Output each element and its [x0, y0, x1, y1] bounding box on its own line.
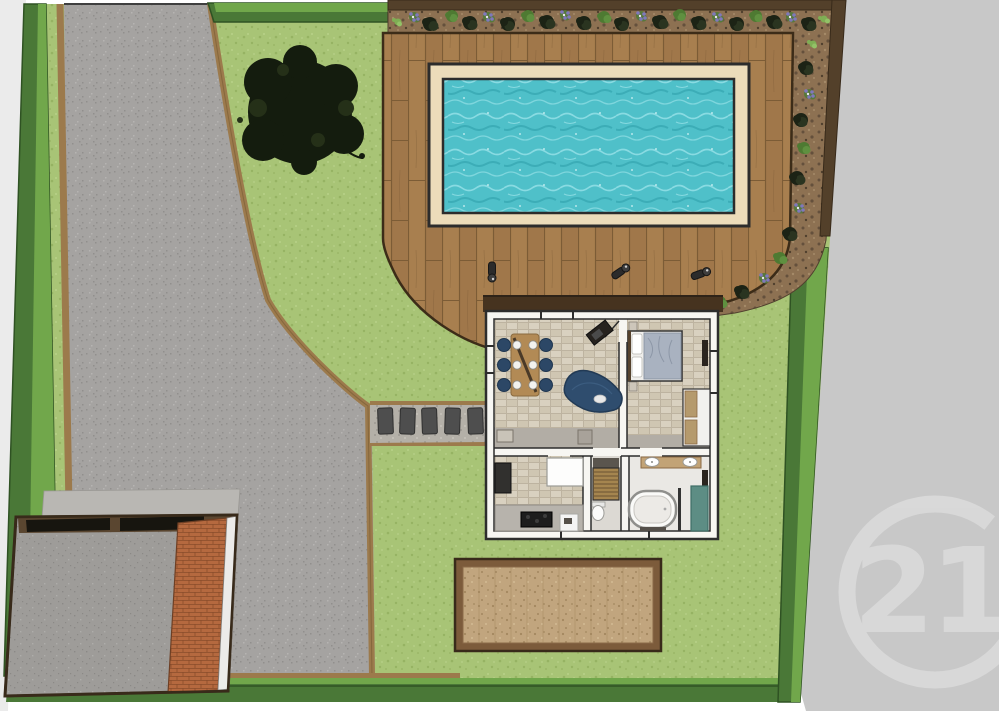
shower-partition [678, 488, 681, 531]
garage-skylight [26, 518, 110, 532]
stair-landing [593, 458, 619, 468]
bath-wall-panel [702, 470, 708, 486]
faucet [689, 461, 691, 463]
swimming-pool [429, 64, 749, 226]
stepping-stone [468, 408, 484, 435]
site-plan: 21 [0, 0, 999, 711]
stepping-stone [422, 408, 438, 435]
burner [535, 519, 539, 523]
bath-mat [640, 527, 666, 531]
deck-light [488, 262, 496, 282]
site-plan-svg: 21 [0, 0, 999, 711]
patio [455, 559, 661, 651]
shower [691, 486, 708, 531]
bathroom [629, 457, 708, 531]
garage-brick-wall [168, 518, 227, 693]
drain [664, 508, 667, 511]
top-hedge [208, 3, 388, 22]
house-shadow-band [483, 295, 723, 312]
pool-water [443, 79, 734, 213]
pillow [632, 357, 642, 377]
headboard [628, 331, 631, 381]
house [486, 311, 718, 539]
garage-apron [42, 489, 240, 518]
c21-numerals: 21 [853, 522, 999, 660]
burner [526, 515, 530, 519]
burner [543, 514, 547, 518]
pillow [632, 334, 642, 354]
wardrobe-drawer [685, 420, 697, 444]
faucet [651, 461, 653, 463]
radiator [497, 430, 513, 442]
wall-panel [702, 340, 708, 366]
nightstand-top [629, 322, 637, 331]
stepping-stone [378, 408, 394, 435]
dishwasher-panel [564, 518, 572, 524]
garage [5, 489, 240, 696]
stepping-stone [445, 408, 461, 435]
toilet [592, 506, 604, 521]
cat [594, 395, 606, 403]
century21-watermark: 21 [847, 504, 999, 680]
kitchen-island [547, 458, 583, 486]
stair-treads [593, 472, 619, 496]
stepping-stone-path [370, 405, 487, 443]
wardrobe-drawer [685, 391, 697, 417]
stepping-stone [400, 408, 416, 435]
fridge [495, 463, 511, 493]
nightstand-bottom [629, 382, 637, 391]
patio-surface [463, 567, 653, 643]
sideboard [578, 430, 592, 444]
